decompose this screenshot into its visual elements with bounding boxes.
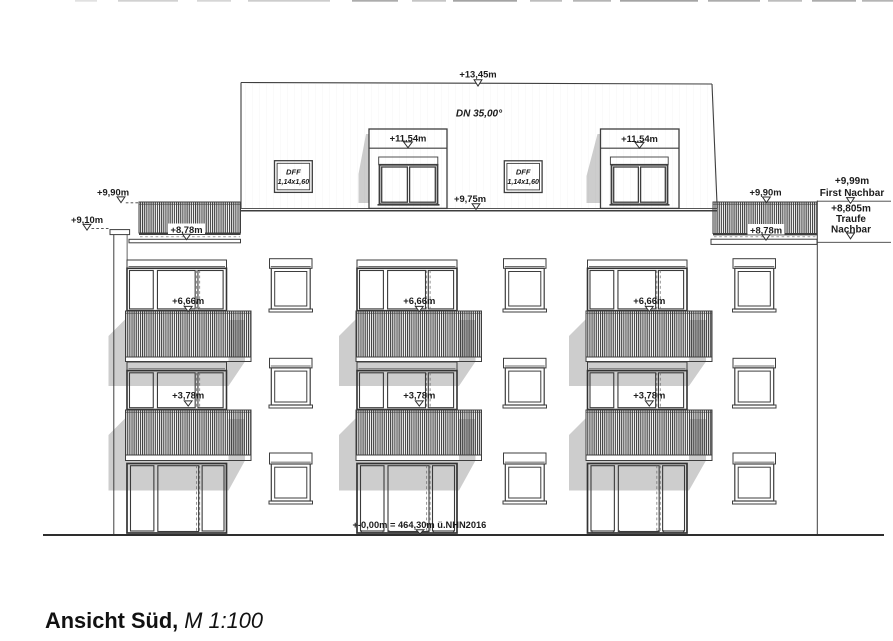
svg-text:+8,78m: +8,78m — [750, 224, 782, 235]
svg-text:+9,99m: +9,99m — [835, 176, 869, 187]
svg-text:+8,805m: +8,805m — [831, 203, 871, 214]
svg-text:+13,45m: +13,45m — [459, 69, 496, 80]
svg-text:+9,10m: +9,10m — [71, 214, 103, 225]
svg-text:+3,78m: +3,78m — [633, 389, 665, 400]
svg-text:Traufe: Traufe — [836, 214, 866, 225]
svg-text:+9,90m: +9,90m — [97, 186, 129, 197]
svg-text:+9,90m: +9,90m — [749, 187, 781, 198]
svg-text:DN 35,00°: DN 35,00° — [456, 109, 503, 120]
svg-text:+6,66m: +6,66m — [403, 295, 435, 306]
svg-text:Ansicht Süd, M 1:100: Ansicht Süd, M 1:100 — [45, 608, 263, 633]
svg-text:1,14x1,60: 1,14x1,60 — [507, 178, 539, 186]
svg-text:+6,66m: +6,66m — [633, 295, 665, 306]
svg-text:+-0,00m = 464,30m ü.NHN2016: +-0,00m = 464,30m ü.NHN2016 — [353, 520, 487, 530]
svg-text:DFF: DFF — [516, 167, 531, 176]
svg-text:+3,78m: +3,78m — [403, 389, 435, 400]
svg-text:1,14x1,60: 1,14x1,60 — [278, 178, 310, 186]
svg-text:+8,78m: +8,78m — [170, 224, 202, 235]
svg-text:+9,75m: +9,75m — [454, 193, 486, 204]
svg-text:+3,78m: +3,78m — [172, 389, 204, 400]
svg-text:DFF: DFF — [286, 167, 301, 176]
svg-text:+6,66m: +6,66m — [172, 295, 204, 306]
